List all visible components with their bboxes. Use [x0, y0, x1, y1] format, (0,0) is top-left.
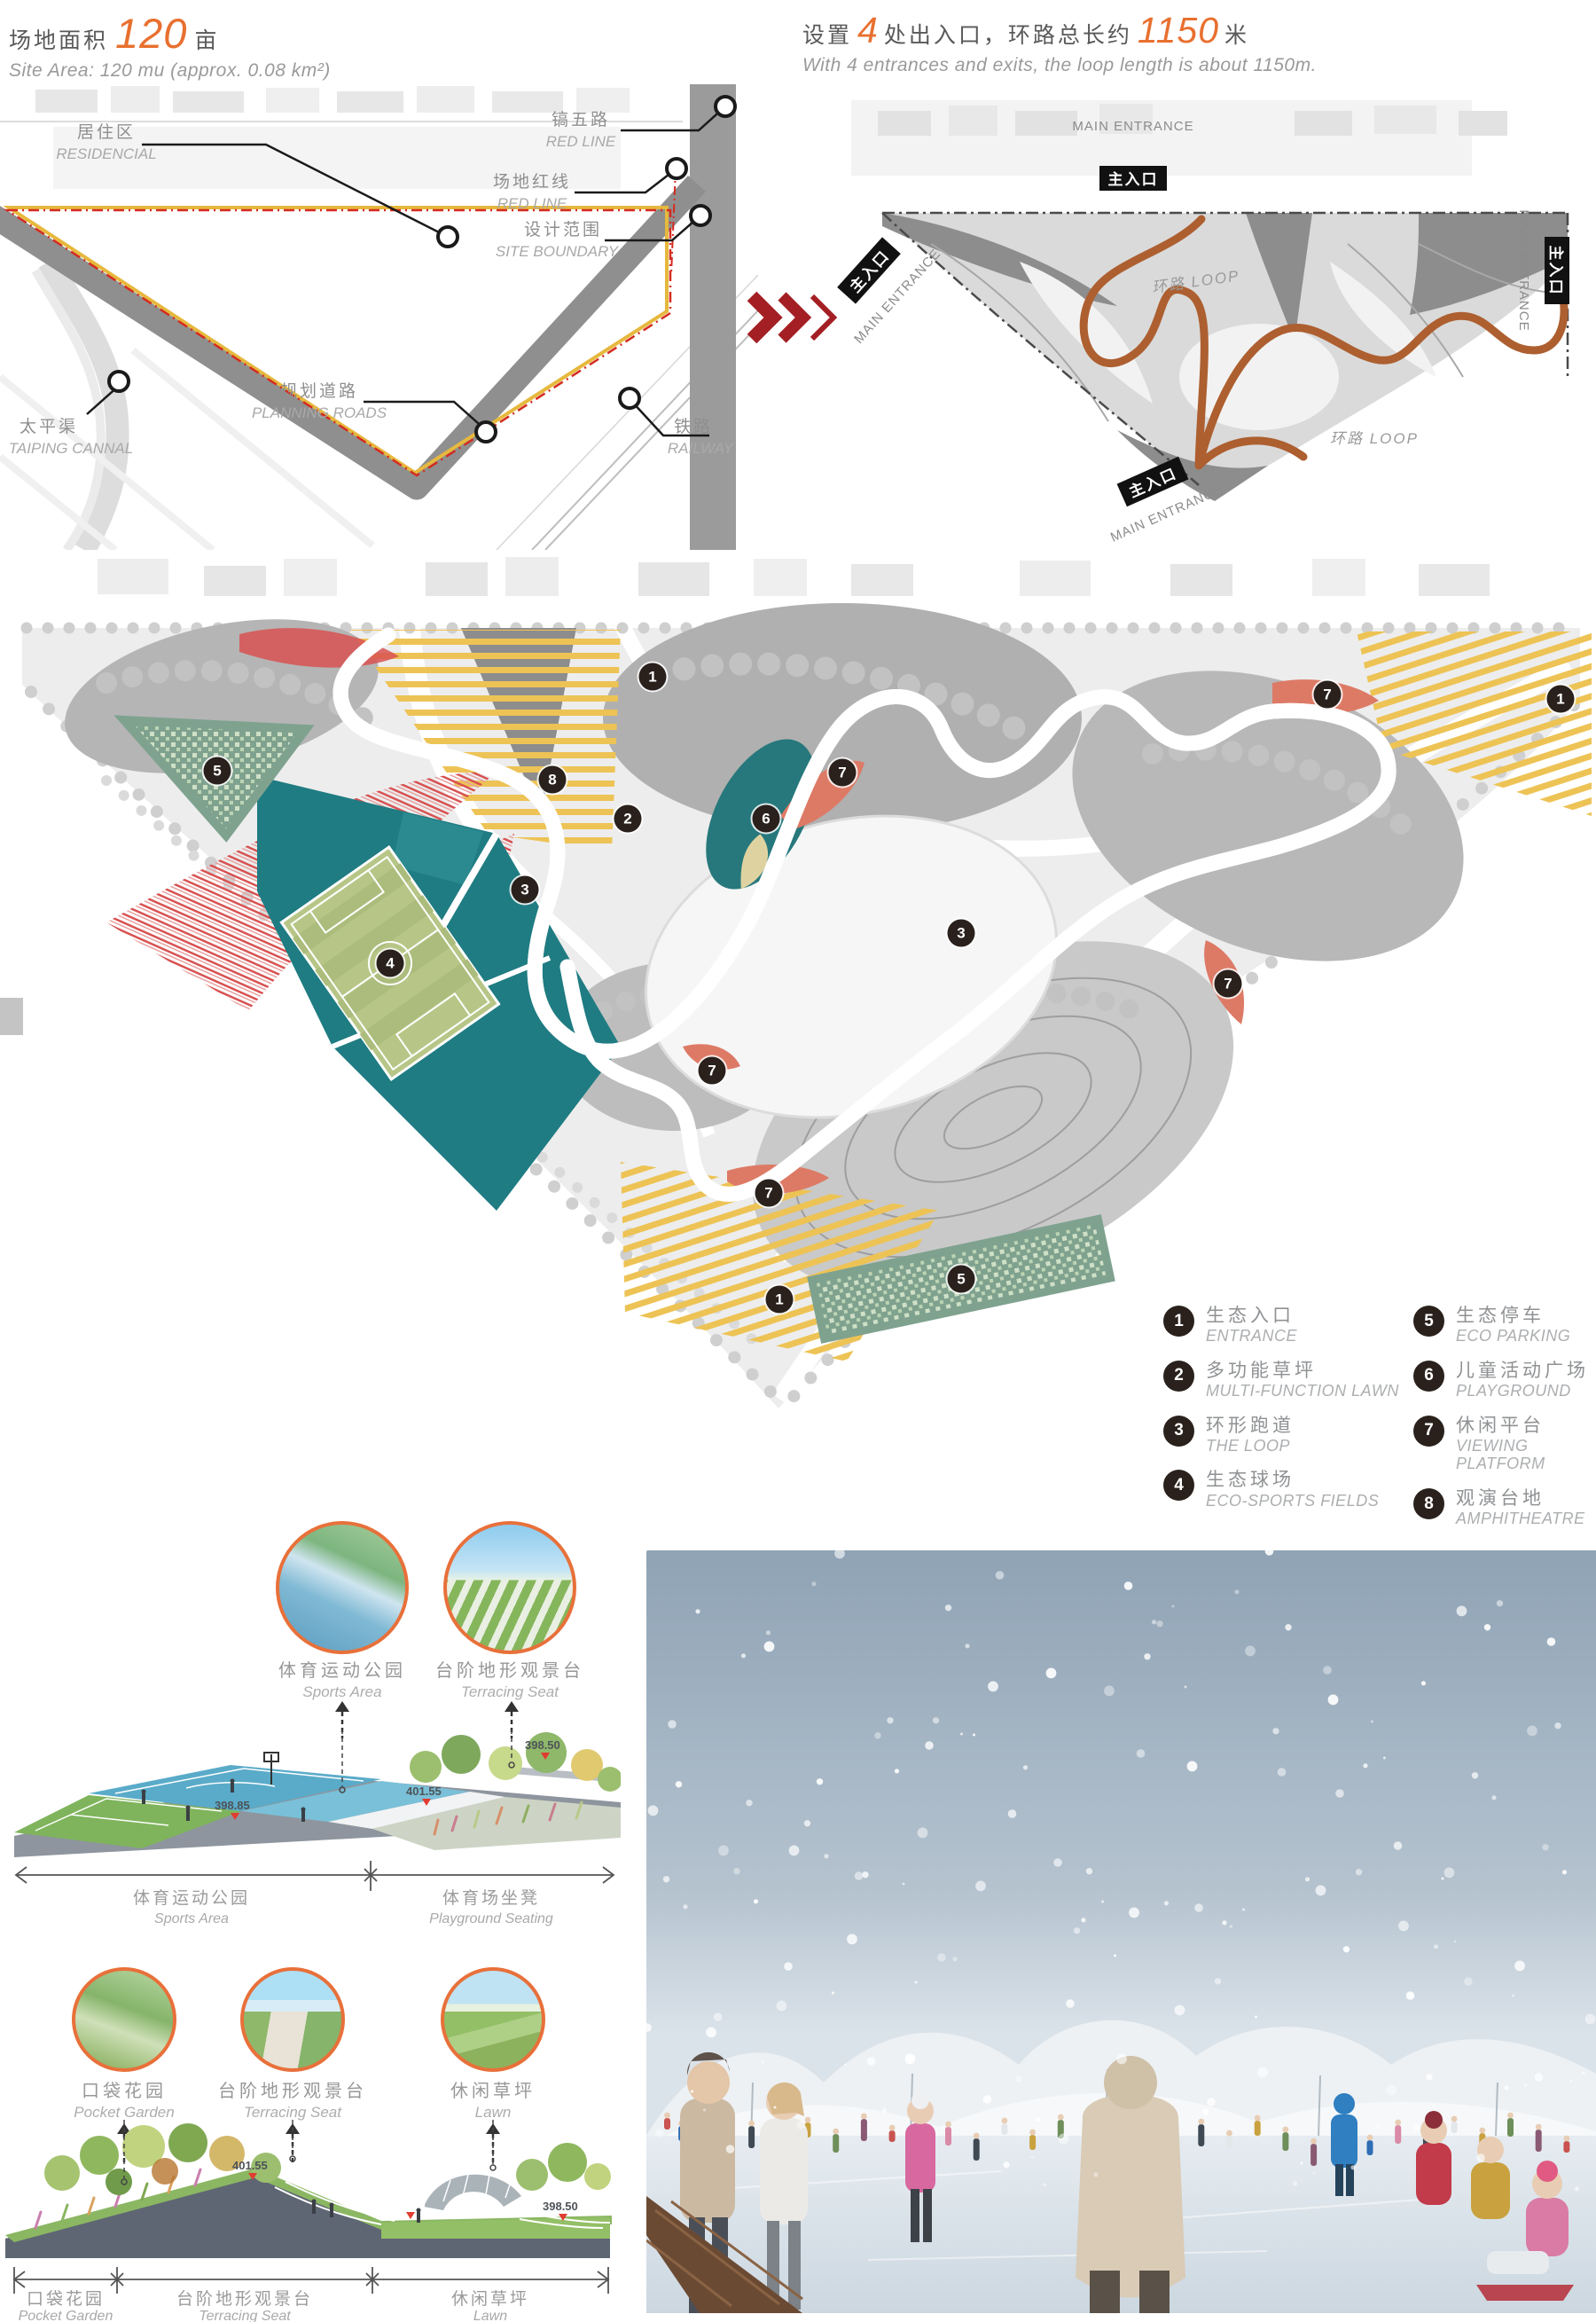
residential-label-zh: 居住区	[77, 122, 136, 142]
legend-item-sports: 4 生态球场 ECO-SPORTS FIELDS	[1163, 1470, 1399, 1510]
residential-label-en: RESIDENCIAL	[56, 145, 156, 162]
road-label-zh: 镐五路	[552, 110, 610, 129]
dim1-seg1-en: Sports Area	[154, 1911, 229, 1926]
legend-col-2: 5 生态停车 ECO PARKING 6 儿童活动广场 PLAYGROUND 7…	[1413, 1306, 1596, 1543]
redline-label-zh: 场地红线	[493, 172, 571, 192]
dim2-seg1-zh: 口袋花园	[27, 2289, 105, 2309]
legend-col-1: 1 生态入口 ENTRANCE 2 多功能草坪 MULTI-FUNCTION L…	[1163, 1306, 1399, 1525]
legend-item-lawn: 2 多功能草坪 MULTI-FUNCTION LAWN	[1163, 1361, 1399, 1400]
elev2-398-50: 398.50	[543, 2200, 578, 2213]
legend-en-5: ECO PARKING	[1456, 1327, 1570, 1345]
railway-label-zh: 铁路	[674, 417, 713, 436]
entr-zh-prefix: 设置	[802, 18, 852, 50]
legend-zh-5: 生态停车	[1456, 1306, 1570, 1327]
entr-zh-unit: 米	[1224, 18, 1249, 50]
loop-length: 1150	[1138, 12, 1219, 49]
road-label-en: RED LINE	[546, 133, 616, 150]
legend-badge-6: 6	[1413, 1361, 1444, 1392]
inset-photo-terracing-2	[240, 1967, 345, 2072]
legend-en-1: ENTRANCE	[1206, 1327, 1297, 1345]
legend-zh-8: 观演台地	[1456, 1488, 1585, 1510]
inset3-zh: 口袋花园	[27, 2081, 222, 2103]
legend-en-7: VIEWING PLATFORM	[1456, 1437, 1596, 1473]
loop-label-2: 环路 LOOP	[1330, 430, 1419, 447]
dim1-seg2-en: Playground Seating	[429, 1911, 553, 1926]
inset1-zh: 体育运动公园	[245, 1660, 440, 1683]
redline-label-en: RED LINE	[497, 195, 567, 212]
legend-zh-1: 生态入口	[1206, 1306, 1297, 1327]
presentation-board: 场地面积 120 亩 Site Area: 120 mu (approx. 0.…	[0, 0, 1596, 2322]
inset5-zh: 休闲草坪	[395, 2081, 591, 2103]
canal-label-en: TAIPING CANNAL	[9, 440, 133, 457]
winter-scene-rendering	[646, 1550, 1596, 2313]
inset-label-terracing-2: 台阶地形观景台 Terracing Seat	[195, 2081, 390, 2122]
planning-roads-label-en: PLANNING ROADS	[252, 404, 387, 421]
legend-badge-4: 4	[1163, 1470, 1194, 1501]
site-area-unit: 亩	[194, 23, 219, 55]
section-terracing-lawn: 401.55 398.90 398.50	[0, 2120, 621, 2269]
dim1-seg1-zh: 体育运动公园	[133, 1888, 250, 1908]
legend-en-3: THE LOOP	[1206, 1437, 1295, 1455]
railway-label-en: RAILWAY	[668, 440, 735, 457]
legend-en-4: ECO-SPORTS FIELDS	[1206, 1492, 1379, 1510]
legend-item-entrance: 1 生态入口 ENTRANCE	[1163, 1306, 1399, 1345]
legend-en-2: MULTI-FUNCTION LAWN	[1206, 1382, 1399, 1400]
elev2-401-55: 401.55	[232, 2159, 268, 2172]
site-area-title: 场地面积 120 亩 Site Area: 120 mu (approx. 0.…	[9, 12, 331, 82]
inset-photo-terracing-seat	[443, 1521, 576, 1654]
context-buildings	[98, 557, 1490, 596]
main-entrance-top-en: MAIN ENTRANCE	[1072, 119, 1193, 134]
dim2-seg2-en: Terracing Seat	[199, 2309, 291, 2322]
inset1-en: Sports Area	[245, 1683, 440, 1701]
dim2-seg3-zh: 休闲草坪	[451, 2289, 529, 2309]
site-area-en: Site Area: 120 mu (approx. 0.08 km²)	[9, 60, 331, 82]
legend-item-amphitheatre: 8 观演台地 AMPHITHEATRE	[1413, 1488, 1596, 1528]
planning-roads-label-zh: 规划道路	[280, 381, 358, 401]
inset2-en: Terracing Seat	[412, 1683, 607, 1701]
inset4-zh: 台阶地形观景台	[195, 2081, 390, 2103]
plan-legend: 1 生态入口 ENTRANCE 2 多功能草坪 MULTI-FUNCTION L…	[1163, 1306, 1596, 1510]
sled	[1476, 2285, 1574, 2301]
inset2-zh: 台阶地形观景台	[412, 1660, 607, 1683]
legend-zh-2: 多功能草坪	[1206, 1361, 1399, 1382]
dim2-seg2-zh: 台阶地形观景台	[176, 2289, 313, 2309]
canal-label-zh: 太平渠	[20, 417, 78, 436]
legend-zh-3: 环形跑道	[1206, 1416, 1295, 1437]
legend-badge-7: 7	[1413, 1416, 1444, 1447]
inset-photo-sports-area	[276, 1521, 409, 1654]
legend-item-loop: 3 环形跑道 THE LOOP	[1163, 1416, 1399, 1455]
pavilion	[424, 2175, 521, 2210]
edge-road-stub	[0, 998, 23, 1035]
section-trees	[44, 2123, 611, 2195]
legend-en-6: PLAYGROUND	[1456, 1382, 1589, 1400]
legend-zh-6: 儿童活动广场	[1456, 1361, 1589, 1382]
entrances-title: 设置 4 处出入口，环路总长约 1150 米 With 4 entrances …	[802, 12, 1317, 76]
gaowu-road-shape	[690, 84, 736, 550]
site-area-value: 120	[115, 12, 187, 54]
legend-badge-5: 5	[1413, 1306, 1444, 1337]
legend-zh-4: 生态球场	[1206, 1470, 1379, 1491]
inset-label-terracing: 台阶地形观景台 Terracing Seat	[412, 1660, 607, 1701]
inset-label-lawn: 休闲草坪 Lawn	[395, 2081, 591, 2122]
elev-401-55: 401.55	[406, 1785, 442, 1798]
site-area-zh: 场地面积	[9, 23, 108, 55]
boundary-label-zh: 设计范围	[524, 220, 602, 239]
inset-photo-pocket-garden	[72, 1967, 176, 2072]
legend-badge-8: 8	[1413, 1488, 1444, 1519]
context-buildings	[851, 100, 1507, 176]
main-entrance-right-zh: 主入口	[1547, 246, 1565, 296]
elev-398-50: 398.50	[525, 1738, 560, 1752]
legend-item-parking: 5 生态停车 ECO PARKING	[1413, 1306, 1596, 1345]
taiping-canal-shape	[35, 262, 118, 550]
site-context-diagram: 居住区 RESIDENCIAL 镐五路 RED LINE 场地红线 RED LI…	[0, 84, 758, 550]
boundary-label-en: SITE BOUNDARY	[496, 243, 620, 260]
inset-label-pocket-garden: 口袋花园 Pocket Garden	[27, 2081, 222, 2122]
elev-398-85: 398.85	[215, 1799, 250, 1812]
dimension-line-2: 口袋花园 Pocket Garden 台阶地形观景台 Terracing Sea…	[0, 2267, 621, 2322]
elev2-398-90: 398.90	[390, 2198, 426, 2211]
legend-badge-1: 1	[1163, 1306, 1194, 1337]
main-entrance-top-zh: 主入口	[1108, 170, 1159, 188]
entr-zh-mid: 处出入口，环路总长约	[884, 18, 1132, 50]
dim2-seg3-en: Lawn	[473, 2309, 507, 2322]
section-trees	[410, 1732, 621, 1792]
main-entrance-right-en: MAIN ENTRANCE	[1516, 209, 1531, 331]
dim1-seg2-zh: 体育场坐凳	[442, 1888, 540, 1908]
legend-en-8: AMPHITHEATRE	[1456, 1510, 1585, 1528]
entrances-en: With 4 entrances and exits, the loop len…	[802, 55, 1317, 76]
legend-zh-7: 休闲平台	[1456, 1416, 1596, 1437]
legend-item-playground: 6 儿童活动广场 PLAYGROUND	[1413, 1361, 1596, 1400]
legend-badge-3: 3	[1163, 1416, 1194, 1447]
inset-photo-lawn	[441, 1967, 545, 2072]
legend-item-platform: 7 休闲平台 VIEWING PLATFORM	[1413, 1416, 1596, 1474]
legend-badge-2: 2	[1163, 1361, 1194, 1392]
dim2-seg1-en: Pocket Garden	[19, 2309, 113, 2322]
section-sports-area: 398.85 401.55 398.50	[9, 1730, 621, 1863]
dimension-line-1: 体育运动公园 Sports Area 体育场坐凳 Playground Seat…	[9, 1861, 621, 1930]
inset-label-sports-area: 体育运动公园 Sports Area	[245, 1660, 440, 1701]
loop-concept-diagram: MAIN ENTRANCE 主入口 主入口 MAIN ENTRANCE 主入口 …	[798, 84, 1596, 550]
entr-count: 4	[857, 12, 879, 49]
